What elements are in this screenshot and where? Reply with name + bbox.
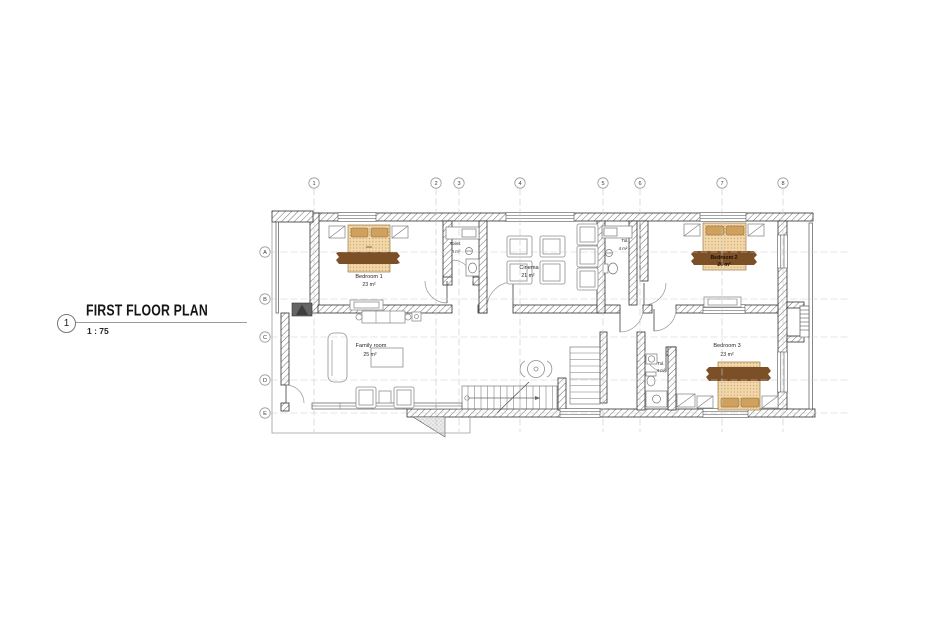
grid-row-B: B	[260, 294, 848, 304]
room-area-toilet-mid: 4 m²	[619, 246, 628, 251]
wall-segment	[281, 313, 289, 385]
room-label-toilet-lower: Tol.	[657, 361, 664, 366]
window	[778, 235, 788, 268]
chair	[520, 361, 525, 377]
svg-text:E: E	[263, 411, 267, 417]
room-area-cinema: 21 m²	[521, 273, 535, 279]
chaise	[328, 333, 347, 382]
svg-text:8: 8	[781, 181, 784, 187]
window	[778, 352, 788, 392]
svg-text:C: C	[263, 335, 267, 341]
blanket	[336, 252, 400, 264]
room-area-bedroom3: 23 m²	[720, 352, 734, 358]
svg-text:6: 6	[638, 181, 641, 187]
balcony-rail	[809, 223, 813, 409]
sofa	[362, 311, 405, 323]
wc-tank	[646, 372, 656, 376]
grid-row-C: C	[260, 332, 848, 342]
wall-segment	[281, 403, 289, 411]
room-area-bedroom1: 23 m²	[362, 282, 376, 288]
room-label-bedroom3: Bedroom 3	[713, 343, 740, 349]
family-room-furniture	[328, 311, 421, 408]
wall-segment	[668, 347, 676, 410]
svg-text:1: 1	[312, 181, 315, 187]
window	[506, 213, 574, 222]
room-label-toilet-mid: Tol.	[621, 238, 628, 243]
stair-break-line	[497, 382, 529, 413]
room-label-family: Family room	[356, 343, 387, 349]
view-number: 1	[64, 318, 70, 329]
svg-text:5: 5	[601, 181, 604, 187]
room-label-bedroom2: Bedroom 2	[710, 255, 737, 261]
svg-text:2: 2	[434, 181, 437, 187]
wall-segment	[640, 221, 648, 281]
blanket	[706, 367, 771, 381]
room-area-bedroom2: 26 m²	[717, 262, 731, 268]
wall-segment	[637, 332, 645, 410]
bed-1	[329, 225, 408, 310]
room-label-cinema: Cinema	[519, 265, 539, 271]
louver-grille	[800, 306, 809, 337]
bed-3	[677, 362, 778, 410]
cinema-door	[487, 282, 513, 308]
wall-segment	[310, 213, 319, 313]
dining-set	[520, 361, 552, 378]
exterior-step	[413, 417, 445, 437]
wc-symbol	[647, 376, 655, 386]
toilet-mid-fixtures	[602, 226, 632, 274]
wc-tank	[603, 264, 608, 273]
stair-direction-arrow	[465, 396, 540, 400]
fireplace	[292, 303, 312, 316]
terrace-parapet	[276, 222, 279, 313]
window	[338, 213, 376, 222]
window	[700, 213, 746, 222]
parapet	[272, 211, 313, 222]
room-area-family: 25 m²	[363, 352, 377, 358]
wall-segment	[443, 277, 452, 285]
wc-symbol	[609, 263, 618, 274]
bedroom2-door	[644, 283, 666, 305]
view-number-bubble: 1	[57, 314, 76, 333]
room-area-toilet-lower: 4 m²	[657, 368, 666, 373]
room-area-toilet-top: 4 m²	[452, 249, 461, 254]
bedroom3-door	[654, 309, 676, 331]
room-label-toilet-top: Toilet	[450, 241, 461, 246]
side-table	[379, 391, 391, 403]
entry-door	[286, 385, 304, 403]
room-label-bedroom1: Bedroom 1	[355, 274, 382, 280]
svg-text:4: 4	[518, 181, 521, 187]
floor-plan-drawing: Bedroom 1 23 m² Toilet 4 m² Cinema 21 m²…	[0, 0, 930, 620]
chair	[547, 361, 552, 377]
wall-segment	[558, 378, 566, 410]
wall-segment	[643, 305, 652, 313]
wall-segment	[513, 305, 598, 313]
wall-segment	[600, 332, 607, 403]
sink-symbol	[648, 356, 654, 362]
svg-text:B: B	[263, 297, 267, 303]
svg-text:D: D	[263, 378, 267, 384]
svg-text:7: 7	[720, 181, 723, 187]
toilet-mid-door	[620, 309, 643, 332]
drawing-sheet: 1 FIRST FLOOR PLAN 1 : 75	[0, 0, 930, 620]
svg-text:A: A	[263, 250, 267, 256]
svg-text:3: 3	[457, 181, 460, 187]
cinema-seating	[507, 224, 598, 290]
